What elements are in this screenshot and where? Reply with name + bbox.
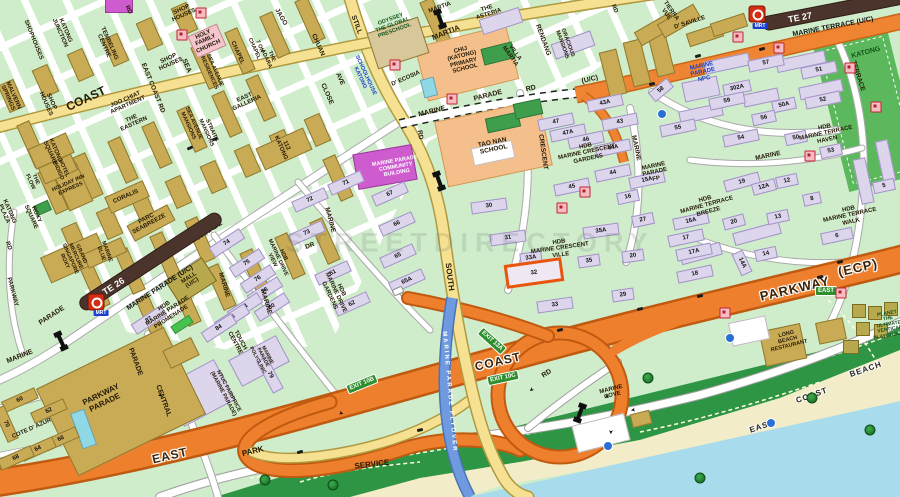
traffic-car-icon	[297, 450, 304, 455]
facility-icon[interactable]	[725, 333, 735, 343]
mrt-logo-icon[interactable]	[749, 6, 766, 23]
street-map-canvas[interactable]: 71727367666565A6162877475767880818584796…	[0, 0, 900, 497]
mrt-tag: MRT	[753, 23, 768, 29]
erp-gantry-icon	[575, 405, 584, 421]
bus-stop-icon	[392, 286, 405, 297]
erp-gantry-icon	[56, 333, 66, 349]
pedestrian-arrow-icon: ➤	[605, 393, 611, 398]
amenity-marker-icon[interactable]	[447, 94, 458, 105]
traffic-car-icon	[649, 82, 656, 86]
traffic-car-icon	[695, 54, 702, 58]
erp-gantry-icon	[434, 173, 443, 189]
facility-icon[interactable]	[657, 109, 667, 119]
amenity-marker-icon[interactable]	[774, 43, 785, 54]
watermark: STREETDIRECTORY	[285, 228, 654, 259]
amenity-marker-icon[interactable]	[580, 187, 591, 198]
amenity-marker-icon[interactable]	[720, 308, 731, 319]
amenity-marker-icon[interactable]	[805, 151, 816, 162]
traffic-car-icon	[187, 145, 194, 150]
amenity-marker-icon[interactable]	[557, 203, 568, 214]
pedestrian-arrow-icon: ➤	[527, 385, 535, 393]
amenity-marker-icon[interactable]	[177, 30, 188, 41]
traffic-car-icon	[759, 47, 766, 51]
tree-icon	[328, 480, 339, 491]
pedestrian-arrow-icon: ➤	[338, 410, 345, 417]
pedestrian-arrow-icon: ➤	[630, 406, 636, 413]
tree-icon	[865, 425, 876, 436]
traffic-car-icon	[557, 328, 564, 332]
amenity-marker-icon[interactable]	[845, 63, 856, 74]
traffic-car-icon	[817, 275, 824, 279]
facility-icon[interactable]	[603, 441, 613, 451]
amenity-marker-icon[interactable]	[836, 288, 847, 299]
amenity-marker-icon[interactable]	[390, 60, 401, 71]
facility-icon[interactable]	[766, 418, 776, 428]
mrt-tag: MRT	[94, 310, 109, 316]
traffic-car-icon	[637, 307, 644, 311]
tree-icon	[260, 475, 271, 486]
traffic-car-icon	[212, 136, 219, 141]
amenity-marker-icon[interactable]	[733, 32, 744, 43]
traffic-car-icon	[417, 428, 424, 432]
traffic-car-icon	[697, 294, 704, 298]
amenity-marker-icon[interactable]	[871, 102, 882, 113]
amenity-marker-icon[interactable]	[196, 8, 207, 19]
pedestrian-arrow-icon: ➤	[607, 429, 613, 434]
pedestrian-arrow-icon: ➤	[156, 392, 164, 400]
tree-icon	[807, 393, 818, 404]
tree-icon	[695, 473, 706, 484]
erp-gantry-icon	[435, 11, 444, 27]
traffic-car-icon	[837, 260, 844, 264]
tree-icon	[643, 373, 654, 384]
mrt-logo-icon[interactable]	[88, 294, 105, 311]
